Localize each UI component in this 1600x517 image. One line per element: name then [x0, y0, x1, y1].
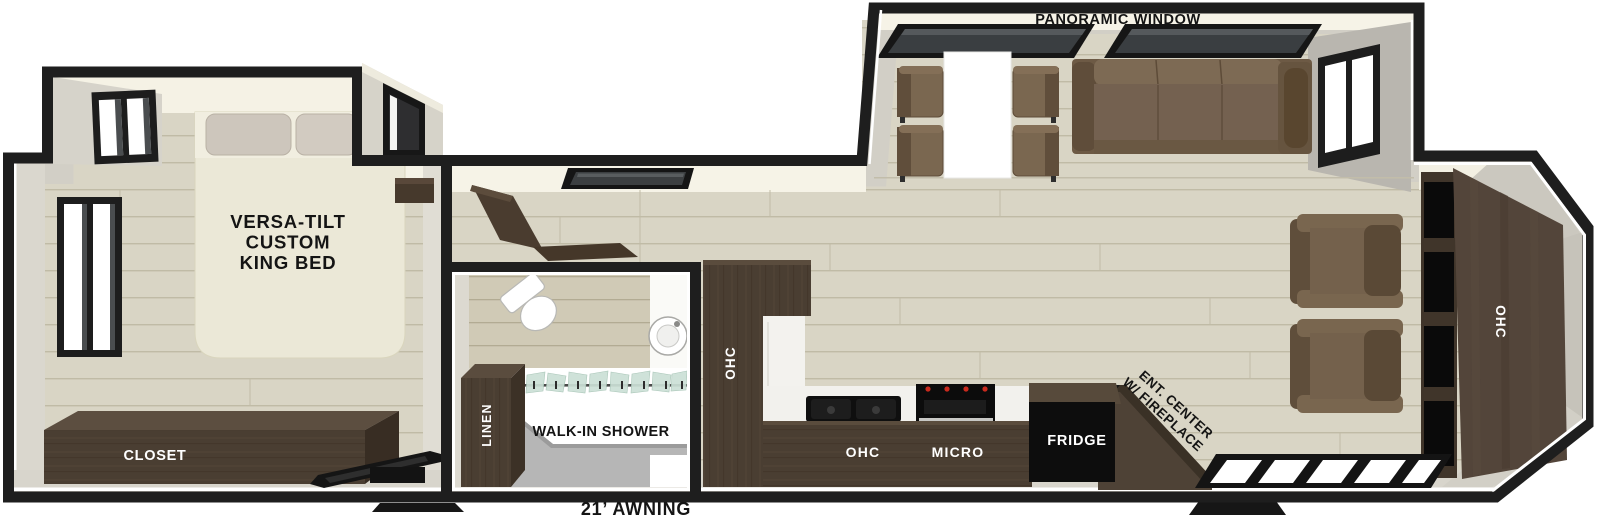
svg-text:OHC: OHC	[723, 346, 738, 380]
svg-text:LINEN: LINEN	[480, 403, 494, 447]
svg-text:PANORAMIC WINDOW: PANORAMIC WINDOW	[1035, 12, 1201, 28]
svg-text:FRIDGE: FRIDGE	[1047, 433, 1107, 449]
svg-text:CLOSET: CLOSET	[123, 448, 186, 464]
svg-text:KING BED: KING BED	[240, 252, 337, 273]
svg-text:21’ AWNING: 21’ AWNING	[581, 499, 691, 517]
svg-text:VERSA-TILT: VERSA-TILT	[230, 211, 346, 232]
svg-text:WALK-IN SHOWER: WALK-IN SHOWER	[533, 424, 670, 440]
svg-text:CUSTOM: CUSTOM	[246, 232, 331, 253]
svg-text:MICRO: MICRO	[932, 444, 985, 460]
svg-text:OHC: OHC	[1493, 305, 1508, 339]
svg-text:OHC: OHC	[846, 444, 881, 460]
